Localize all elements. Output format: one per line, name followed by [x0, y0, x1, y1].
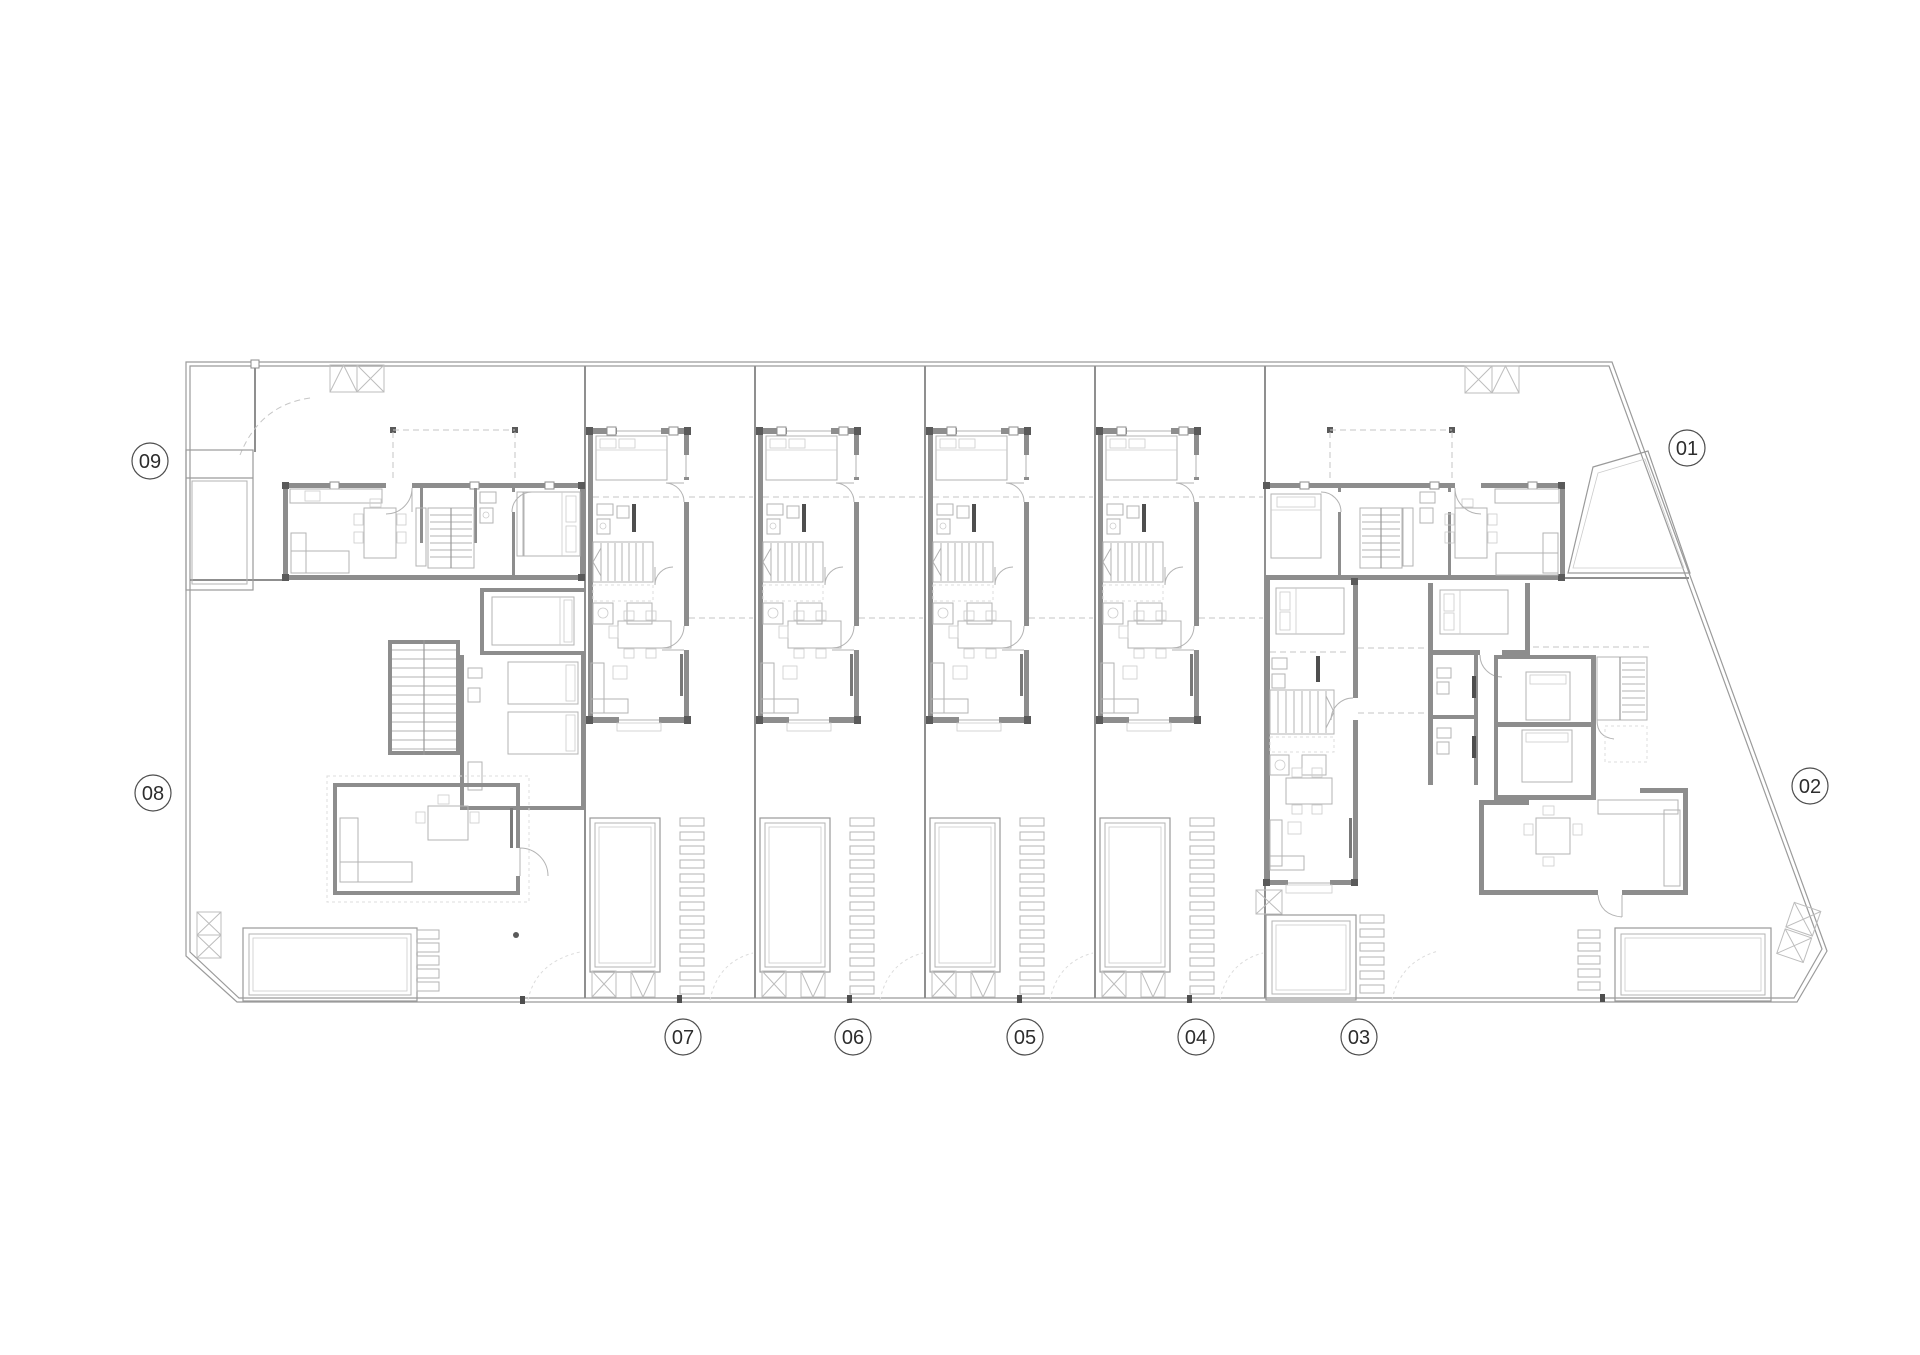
- bed-pillow: [1444, 594, 1454, 611]
- entry-step: [1286, 885, 1332, 893]
- unit-02-house: [1428, 583, 1688, 917]
- wall: [333, 783, 520, 787]
- wall: [1560, 488, 1565, 575]
- wall: [1525, 583, 1530, 655]
- unit-09-pool: [186, 450, 253, 590]
- understair-storage: [1605, 726, 1647, 762]
- unit-06-module: [756, 427, 923, 1003]
- understair-storage: [1270, 737, 1334, 752]
- drain-point: [513, 932, 519, 938]
- terrace-outline: [1568, 451, 1690, 573]
- wall: [333, 783, 337, 895]
- door-jamb-bar: [1472, 736, 1476, 758]
- pool-symbol: [186, 450, 253, 590]
- bed-pillow: [566, 526, 576, 552]
- wall: [580, 488, 585, 575]
- deck-steps-symbol: [1578, 930, 1600, 990]
- wall: [1640, 788, 1688, 793]
- bed-pillow: [566, 496, 576, 522]
- wall-tick: [330, 482, 339, 489]
- unit-08-garden: [197, 912, 580, 1004]
- bed-symbol: [1526, 672, 1570, 720]
- wall: [283, 488, 288, 575]
- sofa-back: [340, 818, 358, 882]
- pool-symbol: [1615, 928, 1771, 1001]
- wall-post: [282, 574, 289, 581]
- wall: [460, 806, 585, 810]
- floor-plan-canvas: 01 02 03 04 05 06 07 08: [0, 0, 1920, 1355]
- label-text: 08: [142, 783, 164, 805]
- door-gap: [1598, 890, 1622, 895]
- unit-01-house: [1263, 427, 1690, 581]
- unit-08-house: [327, 588, 585, 938]
- unit-04-module: [1096, 427, 1263, 1003]
- skylight-symbol: [1465, 366, 1519, 393]
- bed-symbol: [524, 492, 580, 556]
- kitchen-counter: [1495, 489, 1559, 503]
- sofa-seat: [340, 862, 412, 882]
- entry-door-arc: [386, 488, 412, 514]
- skylight-symbol: [1777, 902, 1821, 962]
- unit-label-06: 06: [835, 1019, 871, 1055]
- bed-symbol: [1276, 588, 1344, 634]
- door-jamb-bar: [1316, 656, 1320, 682]
- chair-symbol: [470, 812, 479, 823]
- chair-symbol: [1462, 499, 1473, 507]
- unit-07-module: [586, 427, 753, 1003]
- bed-symbol: [1522, 730, 1572, 782]
- wall: [1494, 655, 1596, 659]
- unit-02-garden: [1578, 902, 1821, 1002]
- wall-post: [1351, 578, 1358, 585]
- bed-pillow: [1530, 675, 1566, 684]
- stairs-symbol: [1597, 657, 1647, 720]
- wall: [1479, 800, 1529, 805]
- wall: [1479, 890, 1688, 895]
- wardrobe-symbol: [1403, 508, 1413, 566]
- unit-label-07: 07: [665, 1019, 701, 1055]
- entry-door-arc: [1455, 488, 1481, 514]
- kitchen-sink: [305, 491, 320, 501]
- chair-symbol: [416, 812, 425, 823]
- dining-table-symbol: [1536, 818, 1570, 854]
- wall-tick: [545, 482, 554, 489]
- wall-post: [578, 574, 585, 581]
- tv-symbol: [1349, 818, 1352, 858]
- wall: [1494, 795, 1596, 800]
- pool-symbol: [243, 928, 417, 1001]
- wall: [1479, 800, 1484, 895]
- wall-tick: [1300, 482, 1309, 489]
- wall: [581, 655, 585, 810]
- wall: [1474, 655, 1478, 785]
- wall-post: [1263, 482, 1270, 489]
- stair-treads: [1622, 663, 1645, 712]
- wall: [1265, 483, 1563, 488]
- pool-water-edge: [1625, 938, 1761, 991]
- interior-wall: [420, 488, 423, 543]
- fence-cap: [251, 360, 259, 368]
- kitchen-sink: [1275, 760, 1285, 770]
- wall: [1265, 580, 1270, 885]
- tv-symbol: [510, 808, 513, 848]
- wall-post: [282, 482, 289, 489]
- wall: [1353, 580, 1358, 885]
- bed-pillow: [566, 715, 575, 751]
- label-text: 03: [1348, 1027, 1370, 1049]
- wall: [1428, 583, 1433, 785]
- label-text: 06: [842, 1027, 864, 1049]
- bed-symbol: [508, 712, 578, 754]
- floor-plan-page: 01 02 03 04 05 06 07 08: [0, 0, 1920, 1355]
- skylight-symbol: [1256, 890, 1282, 914]
- pool-water-edge: [192, 481, 247, 584]
- bed-pillow: [1444, 613, 1454, 630]
- toilet-symbol: [468, 688, 480, 702]
- bed-symbol: [1271, 494, 1321, 558]
- pool-inner-edge: [1621, 934, 1765, 995]
- toilet-symbol: [1437, 742, 1449, 754]
- unit-label-05: 05: [1007, 1019, 1043, 1055]
- chair-symbol: [438, 795, 449, 804]
- sofa-seat: [1270, 856, 1304, 870]
- dining-table-symbol: [1455, 508, 1487, 558]
- kitchen-counter: [1302, 755, 1326, 775]
- label-text: 01: [1676, 438, 1698, 460]
- wall: [1494, 655, 1498, 800]
- door-gap: [1480, 650, 1502, 655]
- door-gap: [386, 483, 412, 488]
- wall-post: [1263, 879, 1270, 886]
- wall: [480, 588, 585, 592]
- sofa-back: [1598, 800, 1678, 814]
- chair-symbol: [1488, 514, 1497, 525]
- label-text: 02: [1799, 776, 1821, 798]
- gate-swing-arc: [240, 398, 310, 455]
- pool-water-edge: [1276, 925, 1346, 990]
- sink-symbol: [1437, 668, 1451, 678]
- sofa-back: [1270, 820, 1282, 866]
- wall-tick: [470, 482, 479, 489]
- bed-symbol: [508, 662, 578, 704]
- gate-tick: [1600, 994, 1605, 1002]
- sink-symbol: [480, 492, 496, 503]
- sink-symbol: [1437, 728, 1451, 738]
- wall-post: [1351, 879, 1358, 886]
- chair-symbol: [397, 532, 406, 543]
- unit-label-03: 03: [1341, 1019, 1377, 1055]
- bed-pillow: [1526, 733, 1568, 742]
- dining-table-symbol: [428, 806, 468, 840]
- wall: [1433, 715, 1478, 719]
- wall: [1591, 655, 1596, 800]
- pool-water-edge: [253, 938, 407, 991]
- bed-pillow: [566, 665, 575, 701]
- unit-label-09: 09: [132, 443, 168, 479]
- pool-inner-edge: [249, 934, 411, 995]
- chair-symbol: [1543, 857, 1554, 866]
- wall: [456, 640, 460, 755]
- wall: [283, 575, 585, 580]
- door-jamb-bar: [1472, 676, 1476, 698]
- wall-post: [1558, 482, 1565, 489]
- skylight-symbol: [197, 912, 221, 958]
- unit-label-02: 02: [1792, 768, 1828, 804]
- wall: [1265, 575, 1565, 580]
- toilet-symbol: [1437, 682, 1449, 694]
- dining-table-symbol: [1286, 778, 1332, 804]
- wall: [480, 651, 585, 655]
- chair-symbol: [1292, 805, 1302, 814]
- unit-labels: 01 02 03 04 05 06 07 08: [132, 430, 1828, 1055]
- wall: [388, 640, 392, 755]
- sink-symbol: [1272, 658, 1287, 669]
- sink-symbol: [1420, 492, 1435, 503]
- chair-symbol: [1573, 824, 1582, 835]
- wall: [480, 588, 484, 655]
- chair-symbol: [1292, 768, 1302, 777]
- pergola-dashed-outline: [393, 430, 515, 480]
- sofa-seat: [1496, 553, 1558, 575]
- side-table-symbol: [1288, 822, 1301, 834]
- wall: [1683, 788, 1688, 895]
- door-arc: [1598, 895, 1622, 917]
- pool-symbol: [1266, 915, 1356, 1000]
- wall: [516, 783, 520, 895]
- chair-symbol: [1488, 532, 1497, 543]
- dining-table-symbol: [364, 508, 396, 558]
- sofa-seat: [1664, 810, 1680, 886]
- kitchen-appliance: [1270, 755, 1289, 775]
- wall: [283, 483, 585, 488]
- unit-label-04: 04: [1178, 1019, 1214, 1055]
- door-gap: [1455, 483, 1481, 488]
- chair-symbol: [1312, 805, 1322, 814]
- wall-tick: [1528, 482, 1537, 489]
- toilet-symbol: [480, 508, 493, 523]
- wardrobe-symbol: [517, 492, 523, 556]
- driveway-curve: [528, 952, 580, 1000]
- door-gap: [516, 848, 520, 876]
- chair-symbol: [1543, 806, 1554, 815]
- sink-symbol: [468, 668, 482, 678]
- deck-steps-symbol: [1360, 915, 1384, 993]
- door-gap: [1448, 492, 1451, 512]
- unit-label-01: 01: [1669, 430, 1705, 466]
- wall: [1494, 722, 1596, 727]
- bed-symbol: [1440, 590, 1508, 634]
- skylight-symbol: [330, 365, 384, 392]
- pool-inner-edge: [1272, 921, 1350, 994]
- label-text: 04: [1185, 1027, 1207, 1049]
- unit-05-module: [926, 427, 1093, 1003]
- toilet-symbol: [1272, 674, 1285, 688]
- wall: [333, 891, 520, 895]
- sofa-seat: [291, 551, 349, 573]
- bed-pillow: [564, 600, 572, 642]
- label-text: 07: [672, 1027, 694, 1049]
- label-text: 09: [139, 451, 161, 473]
- sofa-back: [291, 533, 306, 573]
- stair-treads: [1278, 691, 1326, 733]
- door-arc: [520, 848, 548, 876]
- unit-label-08: 08: [135, 775, 171, 811]
- unit-09-house: [282, 427, 585, 581]
- chair-symbol: [354, 514, 363, 525]
- unit-03-house: [1263, 578, 1426, 893]
- door-gap: [1353, 698, 1358, 720]
- unit-03-garden: [1256, 890, 1438, 1000]
- yard-dashed-lines: [1358, 648, 1426, 713]
- gate-tick: [520, 996, 525, 1004]
- chair-symbol: [1312, 768, 1322, 777]
- bed-pillow: [1280, 612, 1290, 630]
- driveway-curve: [1392, 951, 1438, 1000]
- chair-symbol: [354, 532, 363, 543]
- kitchen-counter: [290, 489, 382, 503]
- toilet-bowl: [483, 512, 489, 518]
- boundary-inner-line: [190, 366, 1822, 998]
- bed-pillow: [1280, 592, 1290, 610]
- wall-post: [1558, 574, 1565, 581]
- chair-symbol: [1524, 824, 1533, 835]
- wall-post: [578, 482, 585, 489]
- label-text: 05: [1014, 1027, 1036, 1049]
- pergola-dashed-outline: [1330, 430, 1452, 480]
- bed-symbol: [492, 597, 574, 645]
- wall-tick: [1430, 482, 1439, 489]
- deck-steps-symbol: [417, 930, 439, 991]
- chair-symbol: [397, 514, 406, 525]
- bed-pillow: [1277, 497, 1315, 507]
- toilet-symbol: [1420, 508, 1433, 523]
